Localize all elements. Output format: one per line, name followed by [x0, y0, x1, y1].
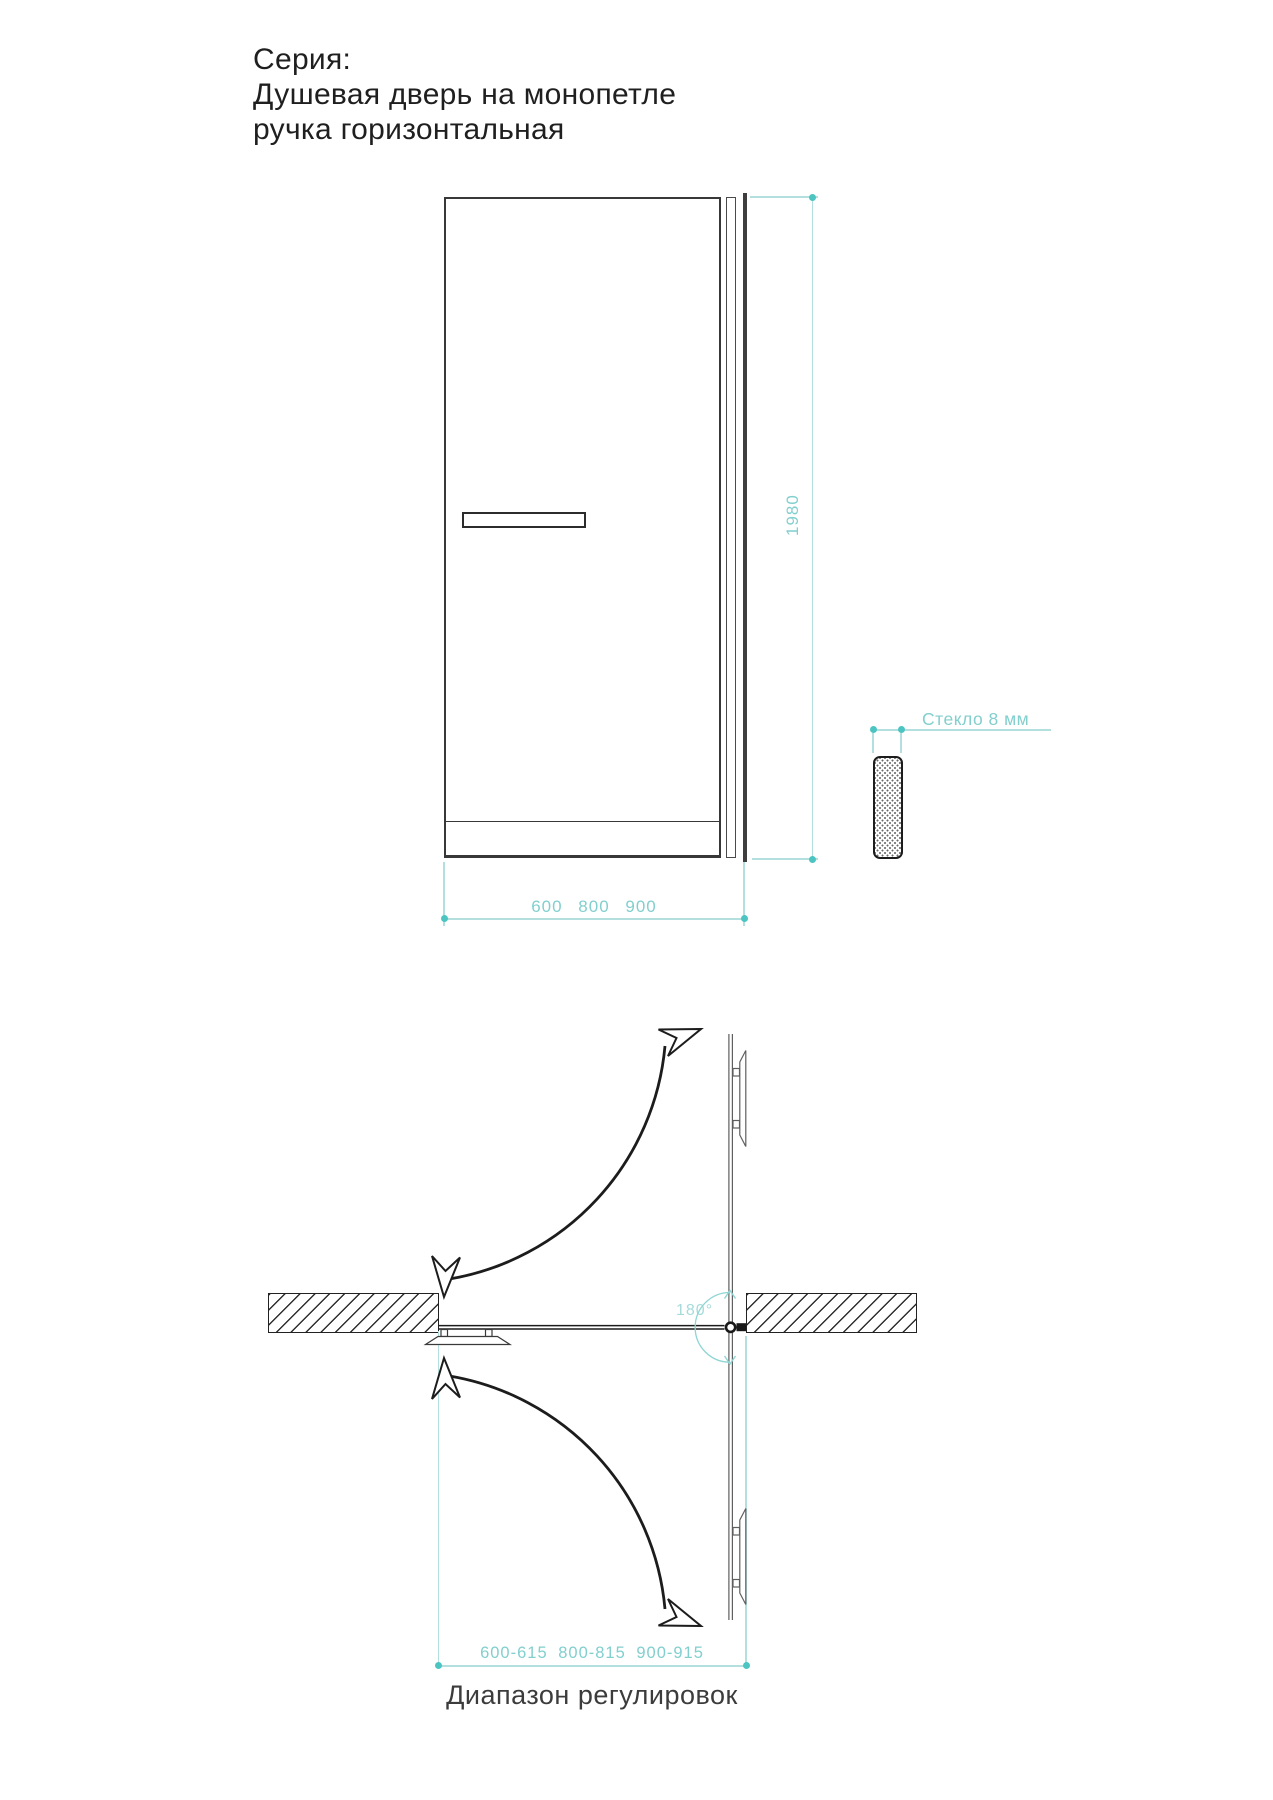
- handle-plan-bottom: [733, 1509, 746, 1605]
- handle-plan-closed: [426, 1330, 511, 1345]
- handle-plan-top: [733, 1051, 746, 1147]
- drawing-sheet: Серия: Душевая дверь на монопетле ручка …: [0, 0, 1273, 1800]
- angle-arc-arrow-down-icon: [725, 1356, 736, 1364]
- hinge-pivot: [726, 1323, 735, 1332]
- swing-arc-top: [450, 1046, 666, 1279]
- hinge-bracket: [737, 1323, 747, 1331]
- angle-arc-arrow-up-icon: [725, 1291, 736, 1299]
- swing-arc-bottom: [450, 1376, 666, 1609]
- plan-view-linework: [0, 0, 1273, 1800]
- closed-door-leaf: [439, 1326, 725, 1329]
